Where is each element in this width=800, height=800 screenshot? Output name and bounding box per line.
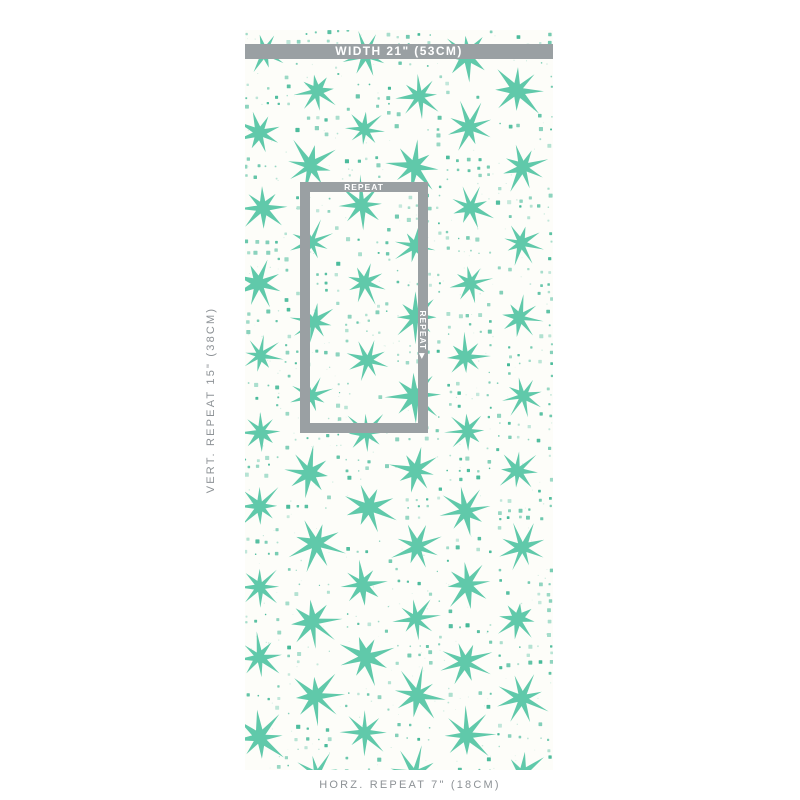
repeat-side-text: REPEAT <box>418 310 428 350</box>
horz-repeat-label: HORZ. REPEAT 7" (18CM) <box>319 779 500 791</box>
repeat-label-side: REPEAT▶ <box>418 310 428 359</box>
vert-repeat-label: VERT. REPEAT 15" (38CM) <box>205 307 217 494</box>
repeat-label-top: REPEAT <box>300 182 428 192</box>
repeat-outline: REPEAT REPEAT▶ <box>300 182 428 433</box>
repeat-direction-arrow-icon: ▶ <box>418 353 425 359</box>
width-label: WIDTH 21" (53CM) <box>335 44 462 59</box>
wallpaper-dimension-diagram: VERT. REPEAT 15" (38CM) WIDTH 21" (53CM)… <box>0 0 800 800</box>
width-measure-bar: WIDTH 21" (53CM) <box>245 44 553 59</box>
wallpaper-swatch: WIDTH 21" (53CM) REPEAT REPEAT▶ <box>245 30 553 770</box>
